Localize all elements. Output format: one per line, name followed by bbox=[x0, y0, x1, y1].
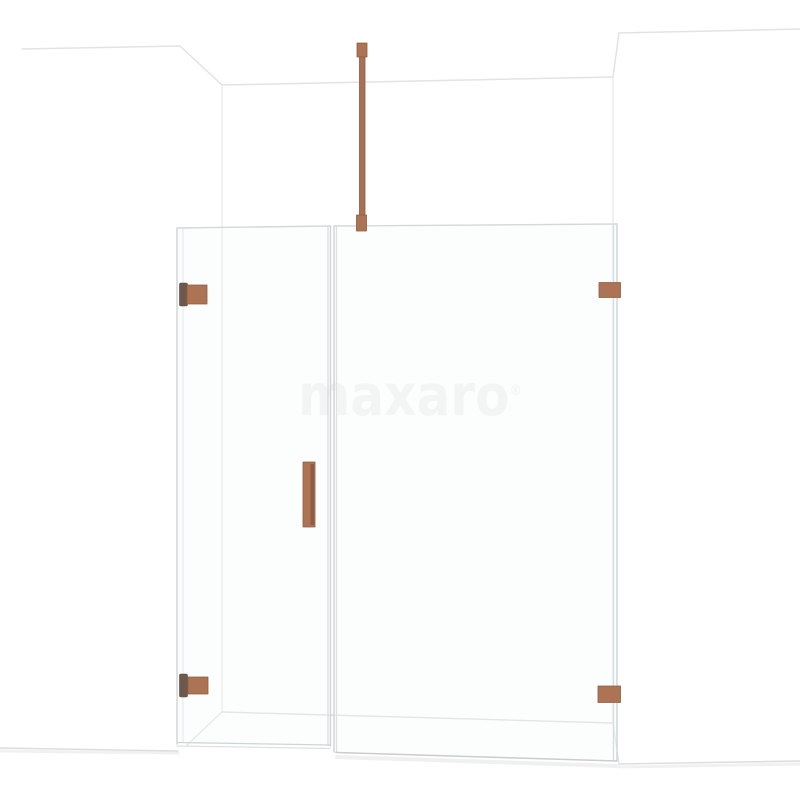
hinge-bottom-glass-clamp bbox=[180, 674, 188, 697]
panel-wall-bracket-top bbox=[599, 283, 621, 298]
shower-enclosure-illustration bbox=[0, 0, 800, 800]
door-hinge-top bbox=[180, 283, 208, 306]
door-handle-shade bbox=[311, 464, 315, 525]
back-wall-ceiling-edge bbox=[222, 77, 613, 85]
panel-wall-bracket-bottom bbox=[598, 686, 621, 703]
door-hinge-bottom bbox=[180, 674, 209, 697]
door-handle bbox=[303, 462, 315, 527]
ceiling-bar-panel-bracket bbox=[357, 215, 367, 231]
left-wall-floor-shadow bbox=[0, 751, 178, 753]
ceiling-mount-cap bbox=[357, 43, 367, 57]
product-image: maxaro® bbox=[0, 0, 800, 800]
left-wall-ceiling-edge bbox=[22, 46, 222, 85]
ceiling-support-bar bbox=[360, 56, 366, 216]
right-wall-ceiling-edge bbox=[613, 29, 800, 77]
fixed-panel-pane bbox=[334, 224, 617, 761]
hinge-top-glass-clamp bbox=[180, 283, 188, 306]
door-waterseal-strip bbox=[177, 746, 330, 749]
hinge-top-wall-plate bbox=[187, 285, 207, 304]
fixed-panel-glass bbox=[334, 224, 617, 766]
right-wall-floor-shadow bbox=[619, 764, 800, 767]
hinge-bottom-wall-plate bbox=[188, 677, 208, 694]
